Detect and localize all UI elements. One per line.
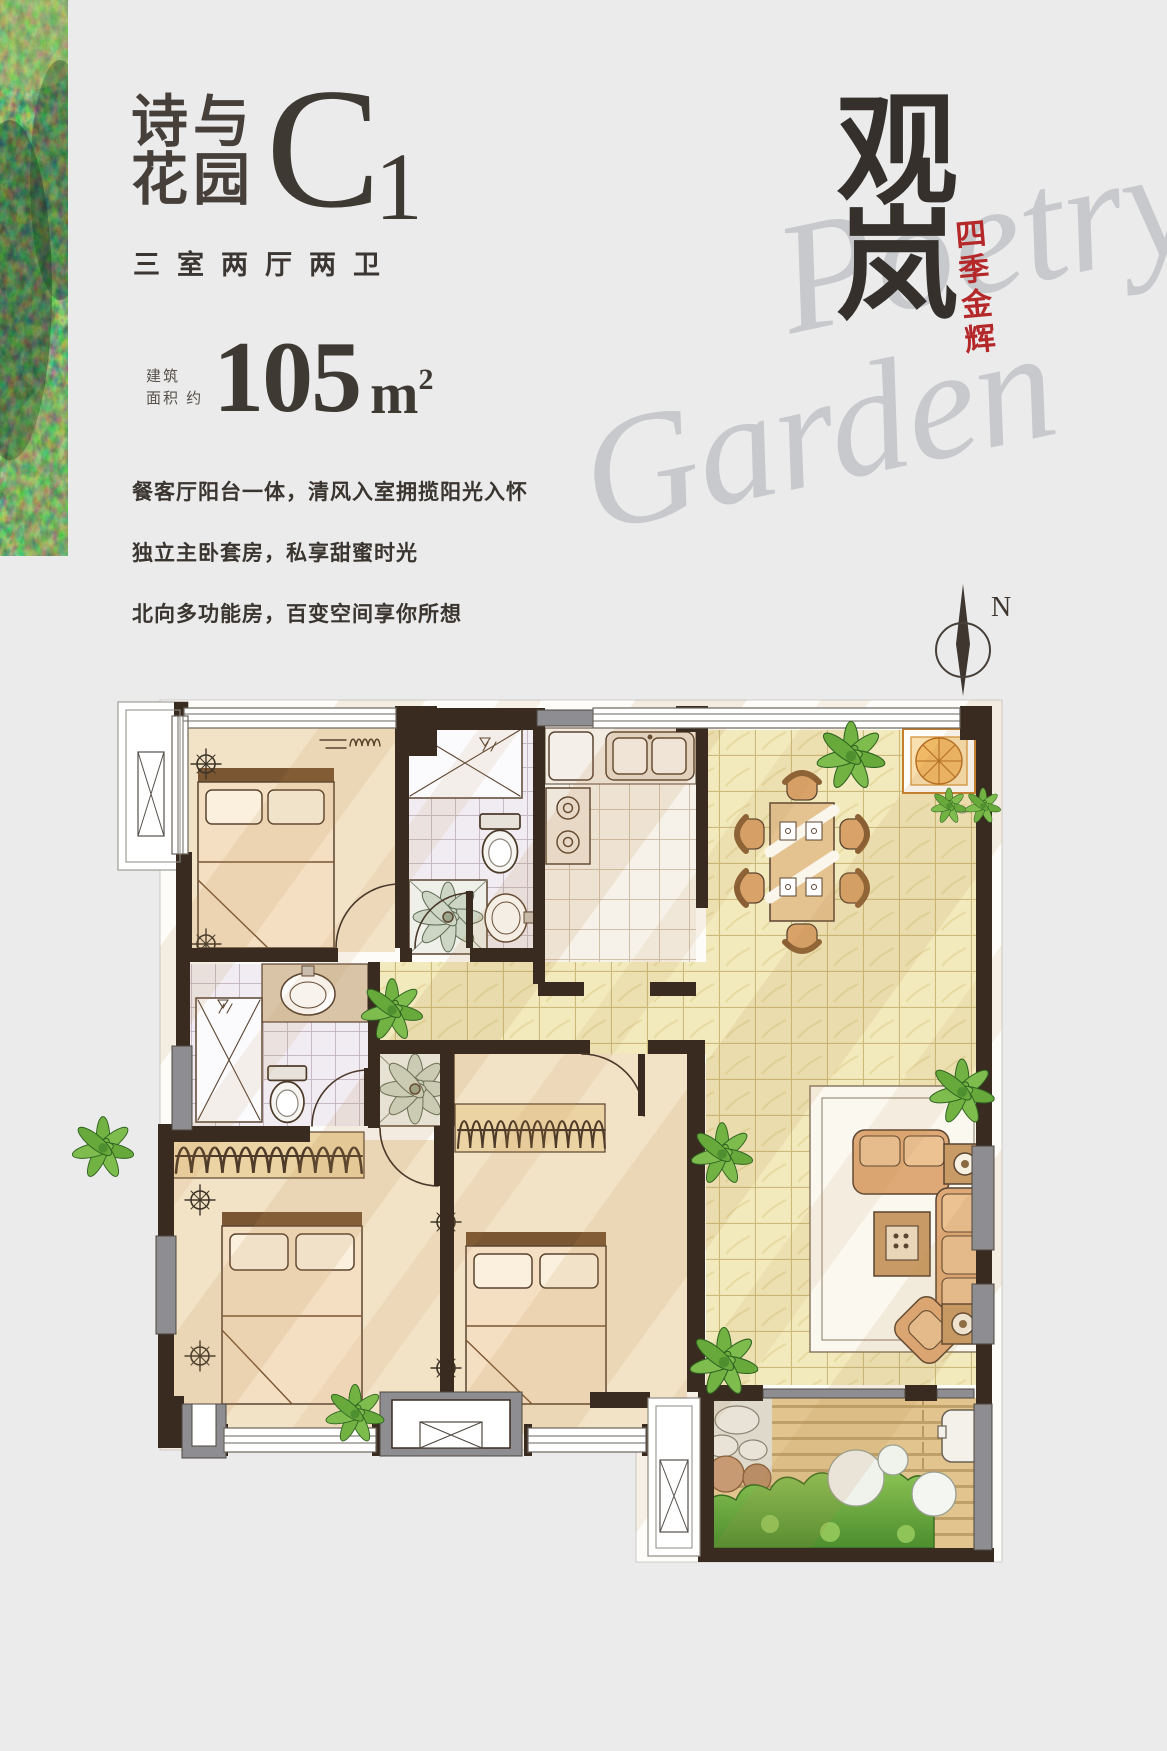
stair-lobby xyxy=(648,1398,700,1556)
floor-plan: N xyxy=(0,0,1167,1751)
poster-page: 诗与 花园 C 1 三室两厅两卫 建筑 面积 约 105 m2 餐客厅阳台一体，… xyxy=(0,0,1167,1751)
plan-body xyxy=(0,38,1167,1751)
corner-niche xyxy=(192,1404,216,1446)
compass-icon: N xyxy=(936,584,1011,696)
north-label: N xyxy=(991,592,1011,623)
ac-niche xyxy=(392,1400,510,1448)
